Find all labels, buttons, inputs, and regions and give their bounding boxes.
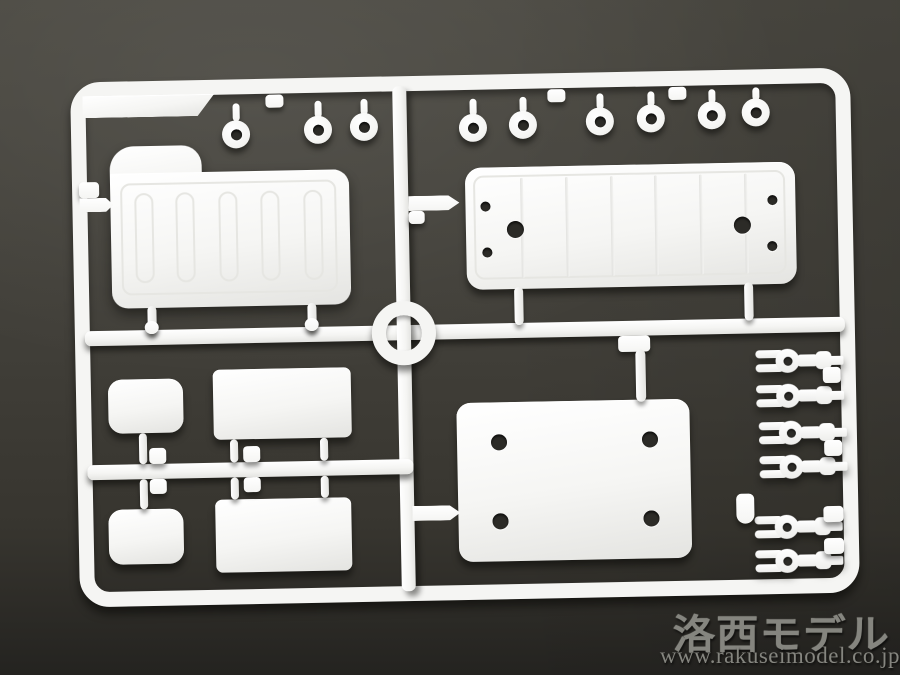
panel-rib xyxy=(218,191,239,281)
part-stem xyxy=(321,476,329,498)
ribbed-panel-left xyxy=(109,142,351,309)
gate-tab xyxy=(149,448,166,464)
fork-clevis-part xyxy=(756,383,844,409)
part-stem xyxy=(230,439,238,462)
gate-tab xyxy=(150,479,167,494)
small-rounded-plate xyxy=(108,378,184,433)
grommet-stem xyxy=(232,103,239,121)
mount-hole xyxy=(491,434,507,450)
panel-stem xyxy=(514,287,524,325)
part-stem xyxy=(140,479,149,509)
gate-tab xyxy=(823,367,841,383)
small-rounded-plate xyxy=(108,508,184,564)
panel-rib xyxy=(303,190,324,280)
part-stem xyxy=(231,477,239,499)
rectangular-plate xyxy=(215,497,352,573)
gate-step xyxy=(618,335,650,352)
gate-tab xyxy=(79,182,99,198)
fork-clevis-part xyxy=(759,454,847,480)
panel-stem xyxy=(744,282,754,320)
gate-tab xyxy=(243,446,260,462)
mount-hole xyxy=(643,510,659,526)
gate-tab xyxy=(547,89,565,102)
gate-step xyxy=(409,211,425,224)
part-stem xyxy=(320,438,328,461)
photo-canvas: { "scene": { "description": "Photograph … xyxy=(0,0,900,675)
gate-tab xyxy=(244,477,261,492)
ribbed-panel-right xyxy=(465,162,797,290)
gate-tab xyxy=(824,440,842,456)
mount-hole xyxy=(642,431,658,447)
gate-tab xyxy=(265,94,283,107)
rectangular-plate xyxy=(213,367,352,440)
watermark-url: www.rakuseimodel.co.jp xyxy=(660,643,900,669)
panel-rib xyxy=(260,191,281,281)
sprue-peg xyxy=(736,493,755,523)
panel-rib xyxy=(175,192,196,282)
part-stem xyxy=(139,433,148,464)
gate-tab xyxy=(823,506,843,522)
sprue-runner xyxy=(70,68,860,608)
mount-hole xyxy=(492,513,508,529)
gate-tab xyxy=(668,87,686,100)
runner-label-plate xyxy=(82,94,214,119)
flat-plate-four-holes xyxy=(456,399,692,562)
panel-rib xyxy=(134,193,155,283)
plate-top-stem xyxy=(635,350,646,402)
gate-tab xyxy=(824,538,844,554)
